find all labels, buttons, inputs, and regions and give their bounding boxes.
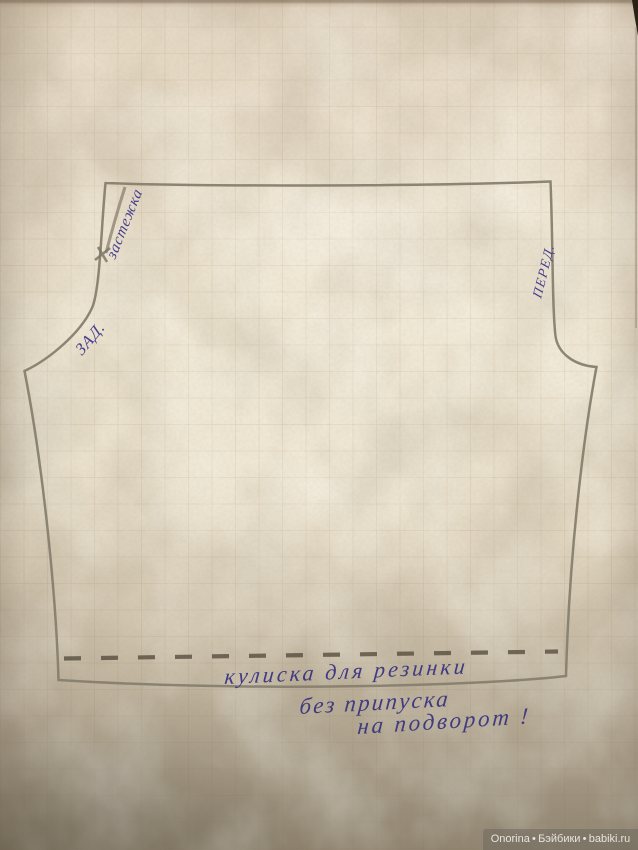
- svg-text:ЗАД.: ЗАД.: [72, 317, 109, 359]
- svg-text:застежка: застежка: [103, 186, 146, 263]
